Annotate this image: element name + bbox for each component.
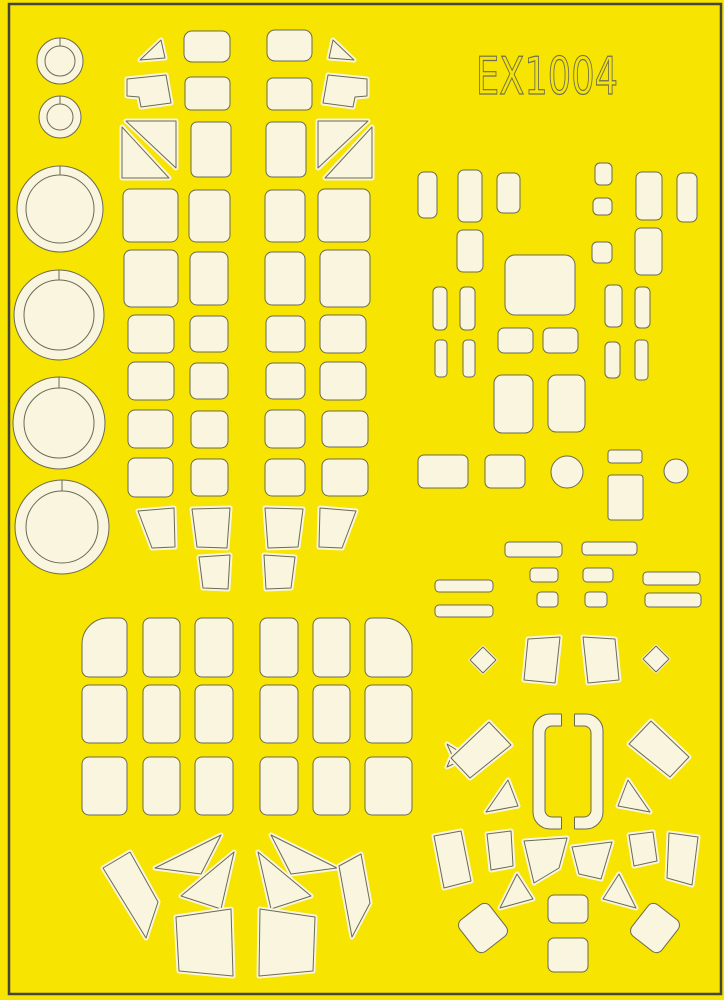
mask-shape-poly xyxy=(524,838,567,883)
mask-shape-poly xyxy=(140,40,165,60)
mask-shape-rect xyxy=(635,340,648,380)
mask-shape-rect xyxy=(605,285,622,327)
mask-shape-rect xyxy=(543,328,578,353)
mask-shape-poly xyxy=(500,874,533,908)
mask-shape-poly xyxy=(603,874,636,908)
mask-shape-rect xyxy=(265,252,305,305)
mask-shape-rect xyxy=(365,757,412,815)
mask-shape-rect xyxy=(497,173,520,213)
mask-shape-rect xyxy=(184,31,230,62)
mask-shape-rect xyxy=(365,618,412,677)
mask-shape-rect xyxy=(267,30,312,61)
mask-shape-poly xyxy=(319,508,356,548)
mask-shape-rect xyxy=(636,172,662,220)
mask-shape-rect xyxy=(190,252,228,305)
mask-shape-rect xyxy=(128,458,173,497)
mask-shape-rect xyxy=(128,315,174,353)
mask-shape-rect xyxy=(608,450,642,463)
mask-shape-rect xyxy=(435,340,447,377)
mask-shape-rect xyxy=(435,605,493,617)
mask-shapes-layer xyxy=(13,30,701,976)
mask-shape-poly xyxy=(264,555,295,589)
mask-shape-poly xyxy=(265,508,303,548)
mask-shape-rect xyxy=(635,228,662,275)
mask-shape-rect xyxy=(82,685,127,743)
mask-shape-poly xyxy=(487,831,513,870)
mask-shape-rect xyxy=(458,170,482,222)
mask-shape-rect xyxy=(593,198,612,215)
mask-shape-rect xyxy=(505,542,562,557)
mask-shape-ring xyxy=(37,38,83,84)
mask-shape-rect xyxy=(460,287,475,330)
mask-shape-rect xyxy=(485,455,525,488)
mask-shape-poly xyxy=(524,637,560,683)
mask-shape-rect xyxy=(582,542,637,555)
mask-shape-poly xyxy=(259,909,315,976)
mask-shape-rect xyxy=(595,163,612,185)
mask-shape-rect xyxy=(265,190,305,242)
mask-shape-poly xyxy=(339,854,370,937)
mask-sheet-canvas: EX1004 xyxy=(0,0,724,1000)
mask-shape-rect xyxy=(592,242,612,263)
mask-shape-ring xyxy=(39,96,81,138)
mask-shape-rect xyxy=(635,287,650,328)
mask-shape-rect xyxy=(265,410,305,448)
mask-sheet: EX1004 xyxy=(0,0,724,1000)
mask-shape-rect xyxy=(189,190,230,242)
mask-shape-rect xyxy=(191,459,228,496)
mask-shape-rect xyxy=(322,459,368,496)
mask-shape-rect xyxy=(190,363,228,399)
mask-shape-poly xyxy=(486,780,518,812)
mask-shape-rect xyxy=(498,328,533,353)
mask-shape-rect xyxy=(267,78,312,110)
mask-shape-rect xyxy=(677,173,697,222)
mask-shape-poly xyxy=(667,833,698,885)
mask-shape-rect xyxy=(322,411,368,447)
mask-shape-poly xyxy=(583,637,619,683)
mask-shape-poly xyxy=(618,780,650,812)
mask-shape-rect xyxy=(463,340,475,377)
mask-shape-rect xyxy=(435,580,493,592)
mask-shape-rect xyxy=(266,363,305,399)
mask-shape-circle xyxy=(551,456,583,488)
mask-shape-poly xyxy=(192,508,230,548)
mask-shape-rect xyxy=(82,757,127,815)
mask-shape-rect xyxy=(418,455,468,488)
mask-shape-rect xyxy=(143,757,180,815)
mask-shape-rect xyxy=(537,592,558,607)
mask-shape-rect xyxy=(585,592,607,607)
mask-shape-rect xyxy=(313,618,350,677)
mask-shape-rect xyxy=(505,255,575,315)
mask-shape-rect xyxy=(195,685,233,743)
mask-shape-rect xyxy=(266,316,305,352)
mask-shape-rect xyxy=(128,362,174,400)
mask-shape-poly xyxy=(434,831,471,888)
mask-shape-poly xyxy=(572,842,612,879)
mask-shape-rect xyxy=(608,475,643,520)
mask-shape-rect xyxy=(260,618,298,677)
mask-shape-rect xyxy=(266,122,306,177)
mask-shape-ring xyxy=(15,480,109,574)
mask-shape-rect xyxy=(190,316,228,352)
mask-shape-poly xyxy=(451,722,511,778)
mask-shape-rect xyxy=(124,250,178,307)
mask-shape-rect xyxy=(313,757,350,815)
mask-shape-rect xyxy=(191,122,231,177)
mask-shape-ring xyxy=(13,377,105,469)
mask-shape-poly xyxy=(629,832,657,866)
mask-shape-circle xyxy=(664,459,688,483)
mask-shape-rect xyxy=(260,757,298,815)
mask-shape-poly xyxy=(199,555,230,589)
mask-shape-rect xyxy=(583,568,613,582)
mask-shape-diamond xyxy=(470,647,496,673)
mask-shape-rect xyxy=(320,250,370,307)
mask-shape-rect xyxy=(494,375,533,433)
mask-shape-rect xyxy=(143,618,180,677)
mask-shape-rect xyxy=(320,362,366,400)
mask-shape-rect xyxy=(191,411,228,448)
mask-shape-rect xyxy=(530,568,558,582)
mask-shape-rect xyxy=(645,593,701,607)
mask-shape-rect xyxy=(185,77,230,110)
mask-shape-rect xyxy=(313,685,350,743)
mask-shape-poly xyxy=(629,721,689,777)
mask-shape-rect xyxy=(143,685,180,743)
mask-shape-rect xyxy=(82,618,127,677)
mask-shape-rect xyxy=(365,685,412,743)
mask-shape-poly xyxy=(329,40,354,60)
mask-shape-poly xyxy=(138,508,175,548)
mask-shape-poly xyxy=(176,909,233,976)
mask-shape-bracket xyxy=(533,713,603,830)
mask-shape-diamond xyxy=(643,646,669,672)
mask-shape-rect xyxy=(265,459,305,496)
mask-shape-rect xyxy=(195,618,233,677)
mask-shape-ring xyxy=(14,270,104,360)
mask-shape-poly xyxy=(103,852,158,938)
mask-shape-rect xyxy=(195,757,233,815)
mask-shape-rect xyxy=(548,895,588,923)
mask-shape-rect xyxy=(433,287,447,330)
mask-shape-poly xyxy=(127,75,171,107)
mask-shape-rect xyxy=(548,375,585,432)
mask-shape-rect xyxy=(605,342,620,378)
mask-shape-rect xyxy=(128,410,173,448)
mask-shape-rect xyxy=(260,685,298,743)
mask-shape-poly xyxy=(323,75,367,107)
mask-shape-rect xyxy=(643,572,700,585)
mask-shape-rect xyxy=(548,938,588,972)
mask-shape-rect xyxy=(457,230,483,272)
sheet-code: EX1004 xyxy=(476,47,618,107)
mask-shape-rect xyxy=(320,315,366,353)
mask-shape-rect xyxy=(418,172,437,218)
mask-shape-ring xyxy=(17,166,103,252)
mask-shape-rect xyxy=(123,189,178,242)
mask-shape-rect xyxy=(318,189,370,242)
